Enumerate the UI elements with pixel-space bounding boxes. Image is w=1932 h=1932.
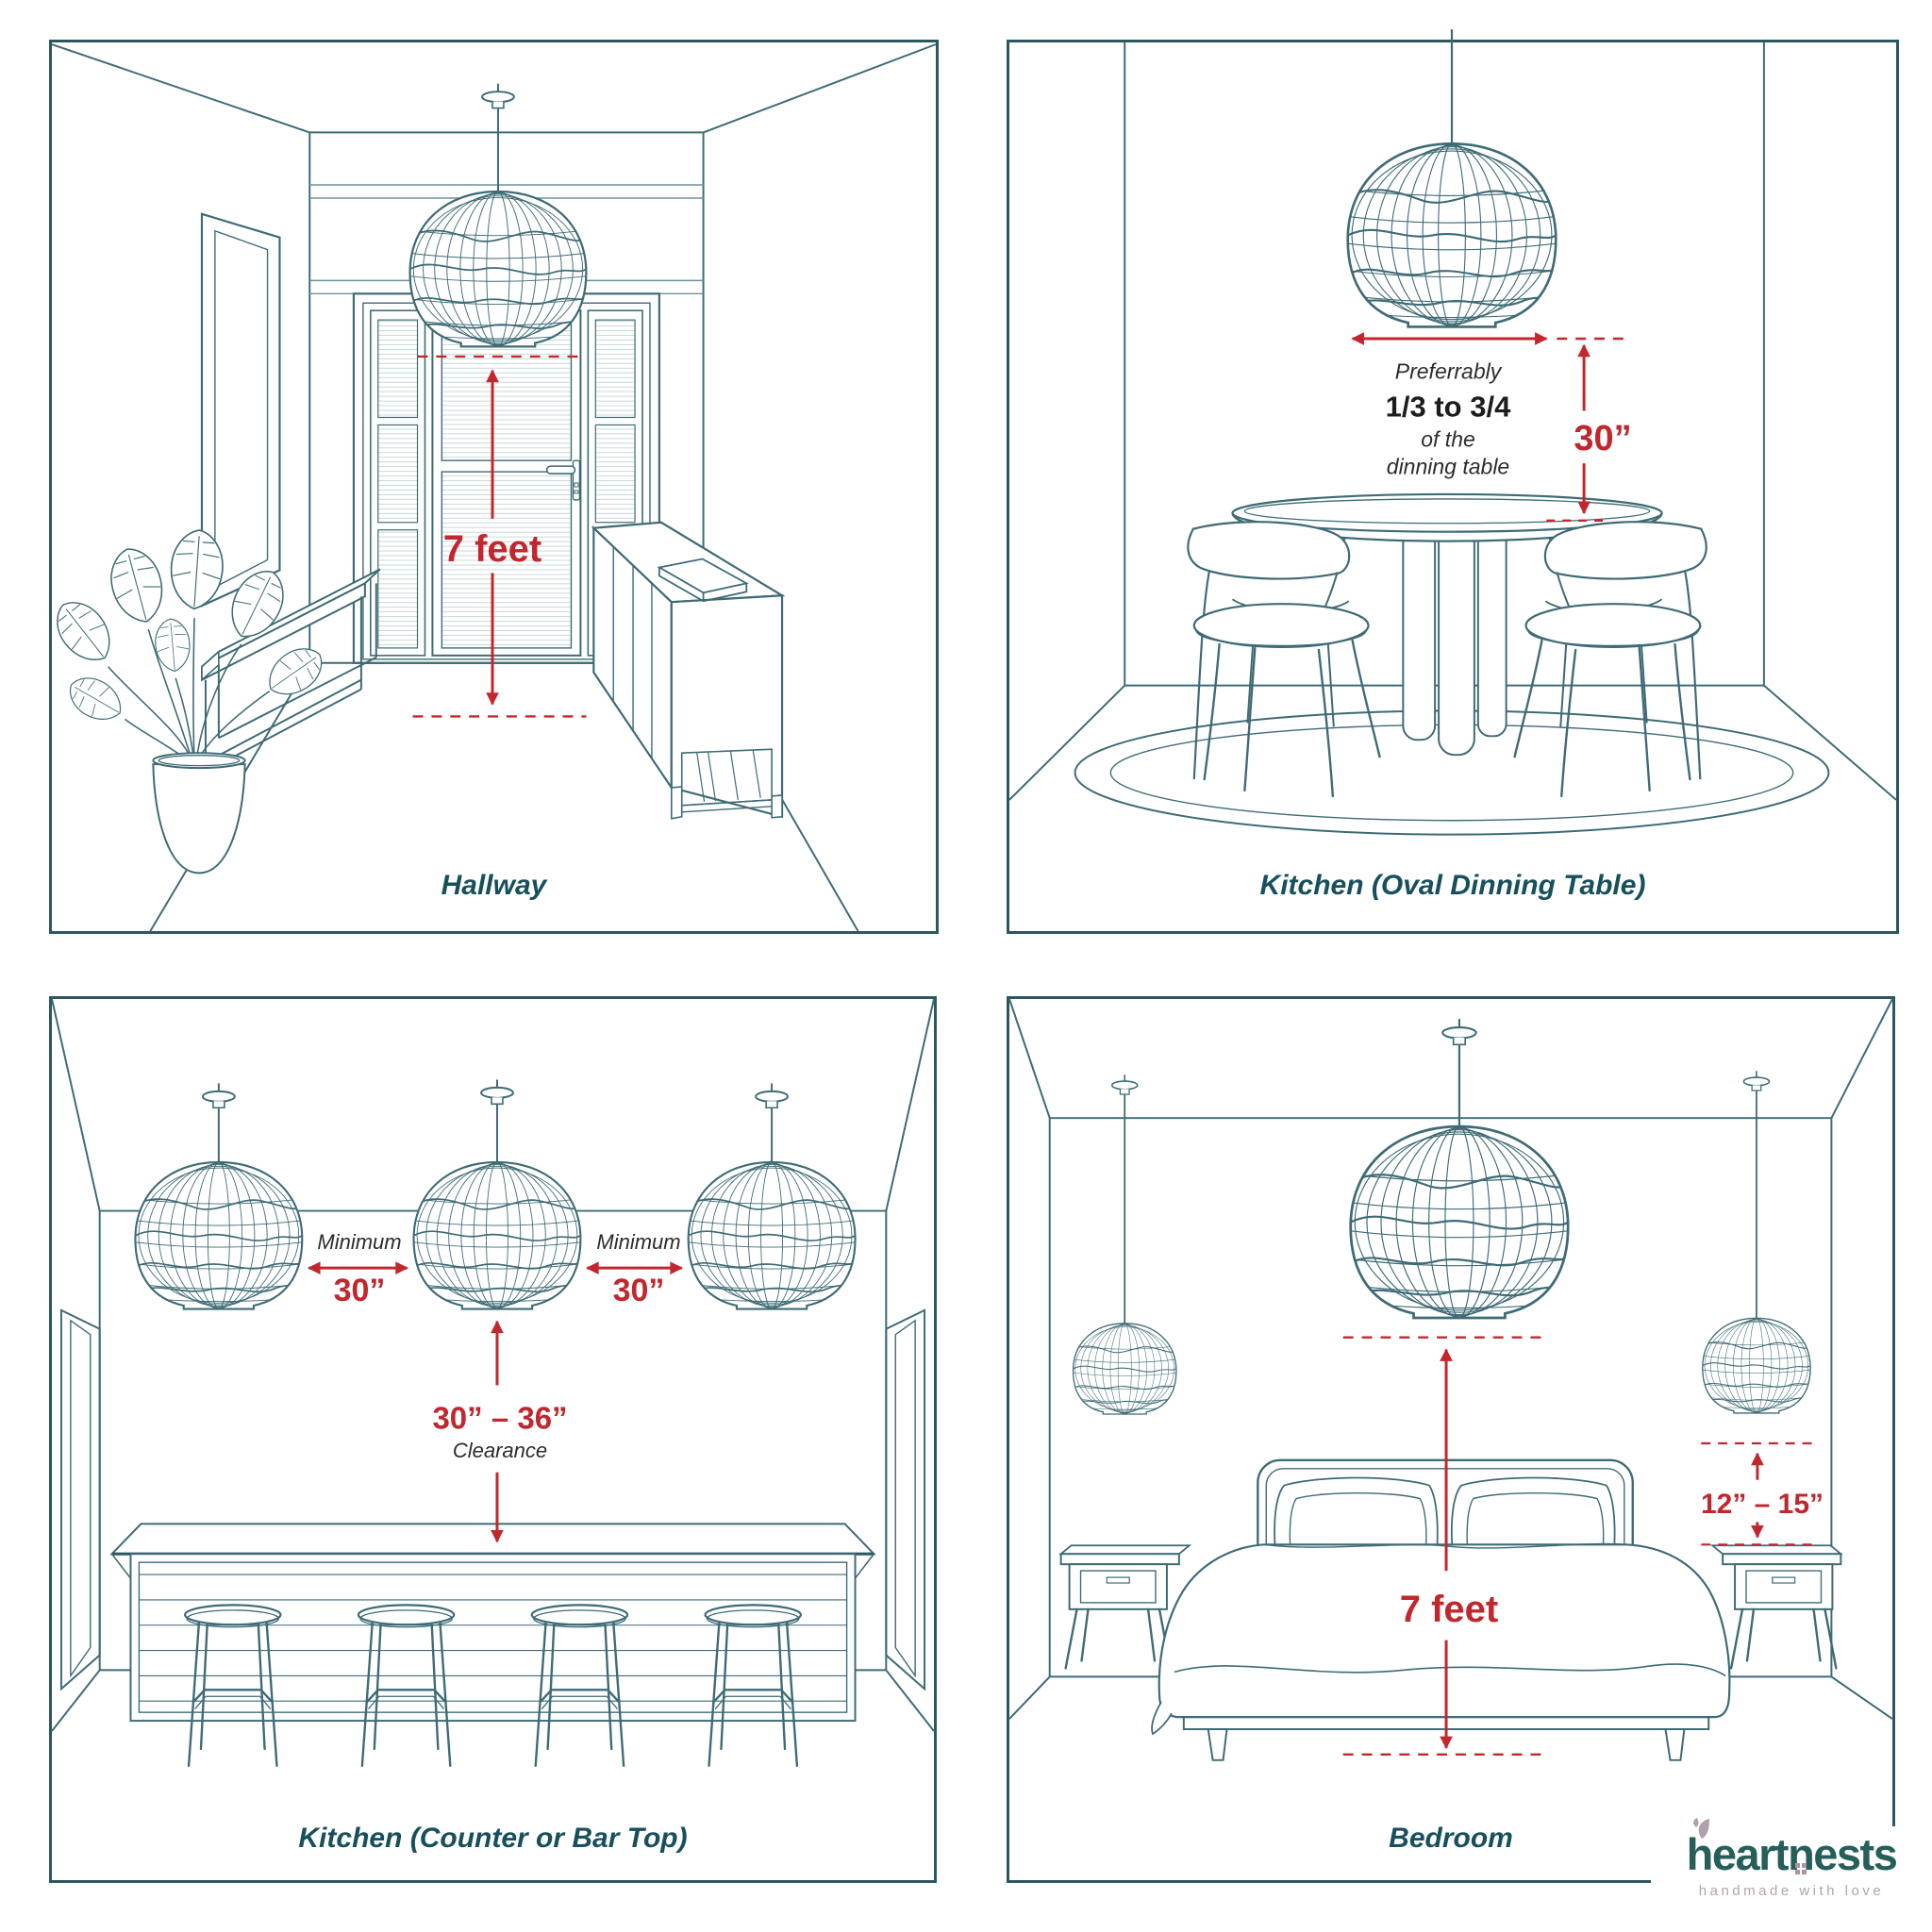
pendant-lamp-icon xyxy=(1351,1019,1569,1318)
duvet xyxy=(1152,1543,1729,1734)
panel-kitchen-counter: Minimum 30” Minimum 30” 30” – 36” Cleara… xyxy=(49,996,937,1883)
nightstand-right xyxy=(1712,1545,1840,1668)
pendant-lamp-icon xyxy=(1703,1071,1810,1413)
pendant-lamp-icon xyxy=(410,84,587,347)
brand-logo: heartnests handmade with love xyxy=(1651,1826,1932,1907)
panel-hallway: 7 feet Hallway xyxy=(49,40,939,934)
pendant-lamp-icon xyxy=(414,1079,581,1308)
panel-kitchen-oval: Preferrably 1/3 to 3/4 of the dinning ta… xyxy=(1007,40,1899,934)
pillow-left xyxy=(1274,1477,1438,1554)
leaf-icon xyxy=(1689,1816,1717,1840)
spacing-value-2: 30” xyxy=(613,1274,665,1307)
kitchen-counter-caption: Kitchen (Counter or Bar Top) xyxy=(52,1823,934,1855)
spacing-value-1: 30” xyxy=(334,1274,386,1307)
panel-bedroom: 7 feet 12” – 15” Bedroom xyxy=(1007,996,1895,1883)
note-line-2: 1/3 to 3/4 xyxy=(1386,392,1511,422)
hallway-caption: Hallway xyxy=(52,870,936,902)
kitchen-oval-caption: Kitchen (Oval Dinning Table) xyxy=(1009,870,1896,902)
pendant-lamp-icon xyxy=(689,1083,856,1308)
kitchen-oval-illustration xyxy=(1009,42,1896,931)
wordmark-part-3: ests xyxy=(1813,1829,1896,1879)
hallway-illustration xyxy=(52,42,936,931)
console-table xyxy=(593,523,782,819)
pendant-lamp-icon xyxy=(1074,1074,1176,1414)
house-window-icon xyxy=(1795,1863,1807,1874)
clearance-value: 30” – 36” xyxy=(432,1403,567,1434)
brand-tagline: handmade with love xyxy=(1651,1883,1932,1899)
note-line-1: Preferrably xyxy=(1395,361,1501,383)
note-line-3: of the xyxy=(1421,429,1475,451)
bedroom-side-measure: 12” – 15” xyxy=(1701,1491,1824,1519)
pillow-right xyxy=(1452,1477,1615,1554)
bedroom-illustration xyxy=(1009,999,1892,1880)
pendant-lamp-icon xyxy=(1348,29,1557,326)
kitchen-oval-height-measure: 30” xyxy=(1574,421,1631,457)
table-pedestal xyxy=(1403,525,1506,755)
pendant-lamp-icon xyxy=(135,1083,302,1308)
spacing-label-1: Minimum xyxy=(317,1232,401,1253)
bedroom-center-measure: 7 feet xyxy=(1400,1591,1499,1628)
spacing-label-2: Minimum xyxy=(596,1232,680,1253)
clearance-label: Clearance xyxy=(453,1441,547,1461)
note-line-4: dinning table xyxy=(1387,457,1509,478)
hallway-height-measure: 7 feet xyxy=(443,530,542,568)
brand-wordmark: heartnests xyxy=(1687,1828,1897,1880)
